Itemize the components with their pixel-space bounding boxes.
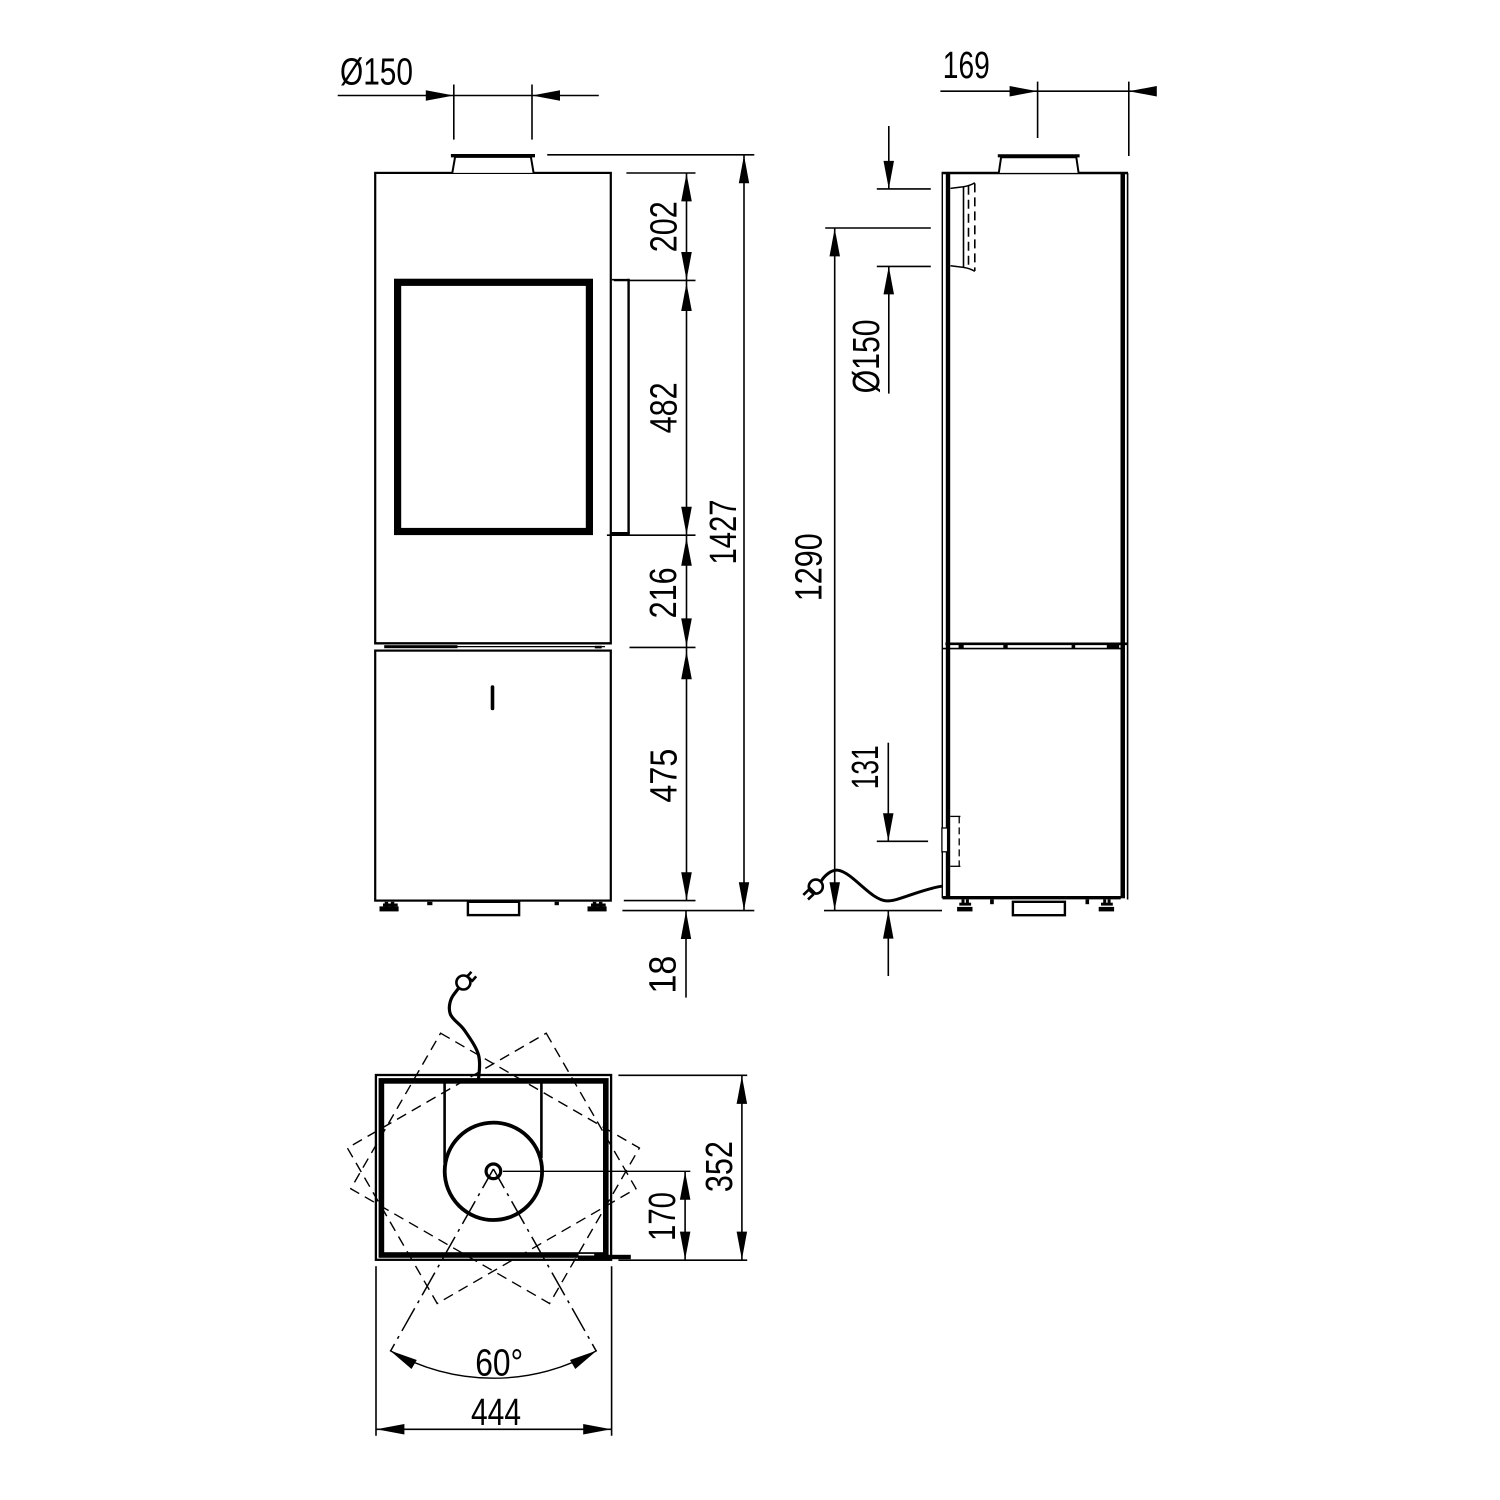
svg-text:482: 482 <box>644 382 686 433</box>
svg-text:Ø150: Ø150 <box>846 319 888 393</box>
svg-text:352: 352 <box>699 1141 741 1192</box>
svg-text:202: 202 <box>644 201 686 252</box>
svg-text:Ø150: Ø150 <box>340 52 413 94</box>
svg-text:131: 131 <box>845 745 887 789</box>
svg-text:18: 18 <box>642 956 684 994</box>
svg-text:444: 444 <box>471 1392 521 1434</box>
svg-text:170: 170 <box>642 1192 684 1241</box>
svg-text:169: 169 <box>943 45 990 87</box>
svg-text:475: 475 <box>644 749 686 803</box>
svg-text:60°: 60° <box>475 1343 523 1385</box>
svg-text:1290: 1290 <box>789 533 831 601</box>
svg-text:216: 216 <box>643 567 685 618</box>
svg-text:1427: 1427 <box>703 500 745 565</box>
